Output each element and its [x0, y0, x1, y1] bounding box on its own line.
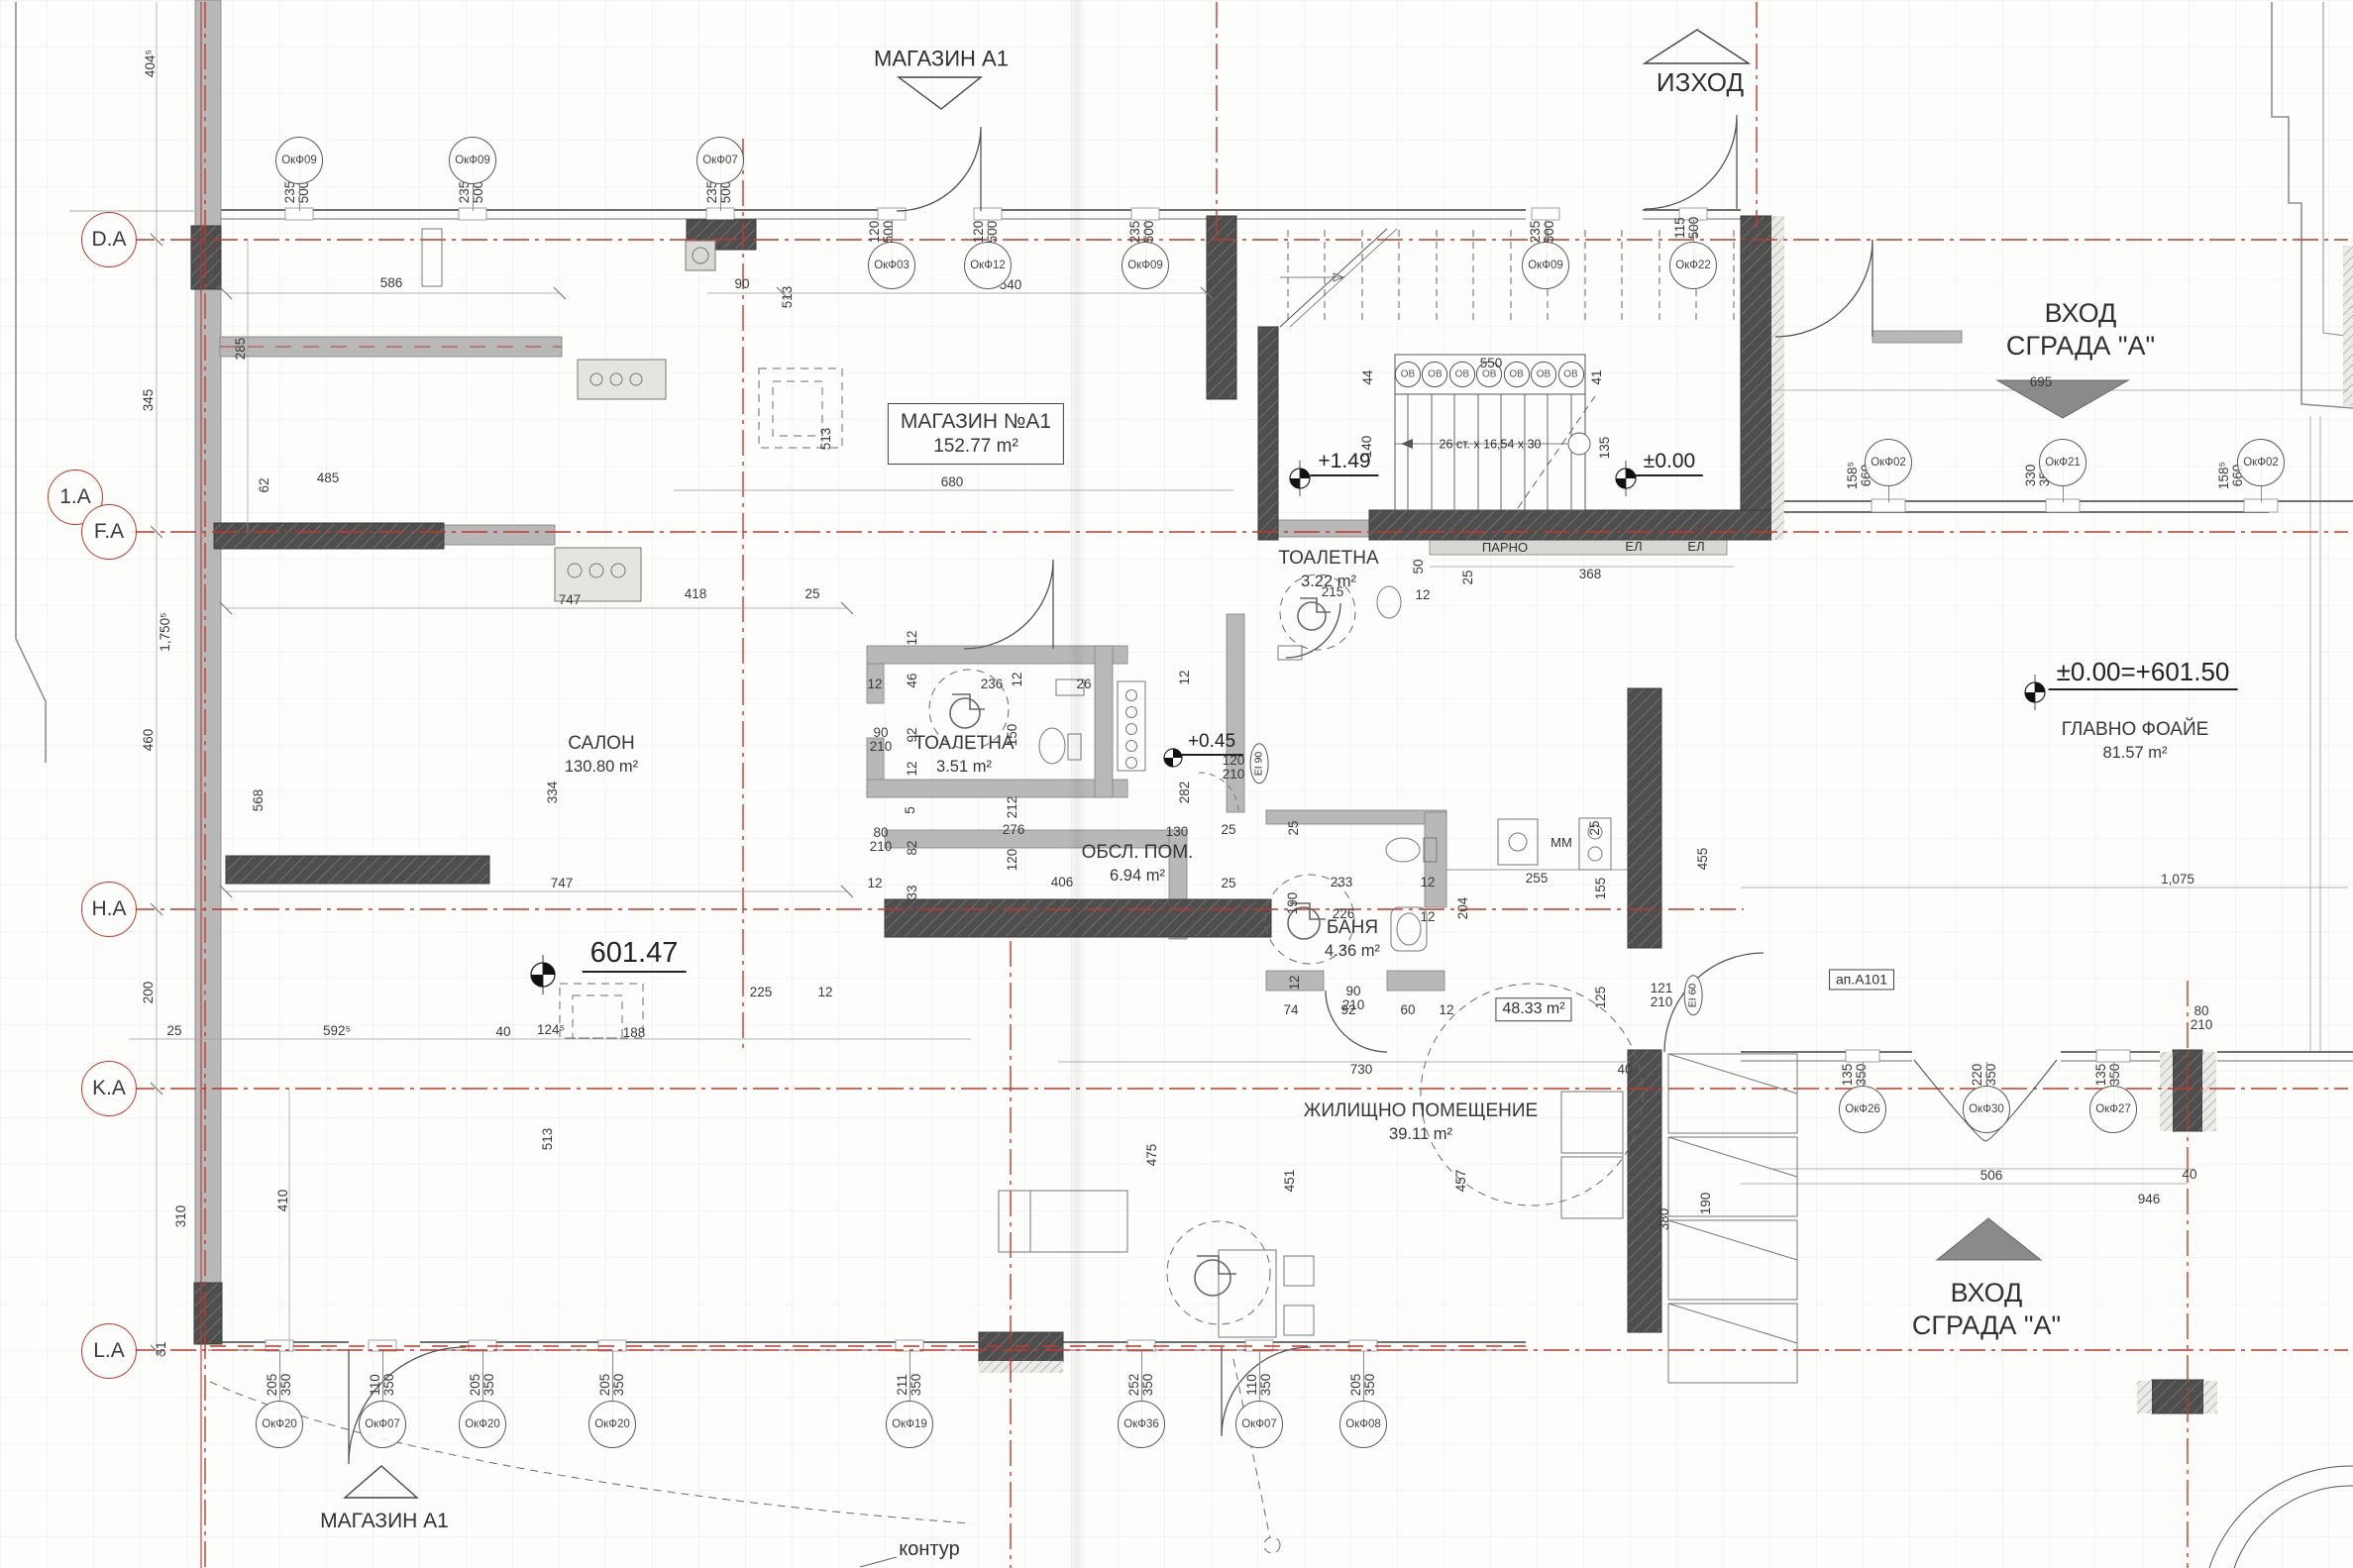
dimension-label: 40	[495, 1025, 510, 1039]
window-marker: ОкФ02	[2237, 439, 2285, 486]
dimension-label: 747	[551, 877, 574, 890]
window-marker: ОкФ19	[886, 1401, 933, 1448]
dimension-label: 680	[941, 475, 964, 489]
room-name: ТОАЛЕТНА	[913, 732, 1014, 757]
dimension-label: 1,750⁵	[159, 612, 172, 651]
dimension-label: 506	[1980, 1169, 2003, 1183]
elevation-label: 601.47	[583, 937, 687, 973]
dimension-label: 12	[1420, 876, 1435, 889]
dimension-label: 82	[906, 840, 919, 855]
dimension-label: 276	[1003, 823, 1025, 837]
dimension-label: 946	[2138, 1193, 2161, 1206]
window-marker: ОкФ26	[1839, 1086, 1886, 1133]
dimension-label: 204	[1456, 897, 1470, 920]
room-area: 152.77 m²	[901, 435, 1051, 460]
dimension-label: 130	[1166, 825, 1189, 839]
window-marker: ОкФ09	[1122, 242, 1169, 289]
window-marker: ОкФ12	[964, 242, 1012, 289]
dimension-label: 135 350	[1841, 1064, 1869, 1087]
insulation	[979, 216, 2353, 1413]
radiator-label: ОВ	[1482, 369, 1496, 380]
dimension-label: 410	[276, 1190, 290, 1212]
dimension-label: 120	[1006, 849, 1019, 872]
dimension-label: 592⁵	[323, 1024, 351, 1038]
radiator-label: ОВ	[1428, 369, 1442, 380]
room-label: МАГАЗИН №А1152.77 m²	[888, 403, 1064, 465]
dimension-label: 225	[750, 986, 773, 999]
dimension-label: 90	[734, 277, 749, 291]
radiator-label: ОВ	[1455, 369, 1469, 380]
window-marker: ОкФ07	[359, 1401, 406, 1448]
structural-walls	[191, 216, 2203, 1413]
dimension-label: 460	[142, 729, 156, 752]
window-marker: ОкФ20	[256, 1401, 303, 1448]
dimension-label: 418	[685, 587, 707, 601]
dimension-label: 455	[1696, 848, 1710, 871]
dimension-label: 74	[1283, 1003, 1298, 1017]
dimension-label: 188	[623, 1026, 646, 1040]
dimension-label: 40	[1617, 1063, 1632, 1077]
dimension-label: 345	[142, 389, 156, 412]
label-electrical-1: ЕЛ	[1625, 539, 1642, 555]
dimension-label: 44	[1361, 369, 1375, 384]
dimension-label: 31	[155, 1341, 168, 1356]
label-entrance-building-a-bottom: ВХОД СГРАДА "А"	[1912, 1277, 2061, 1342]
floor-plan: 404⁵34528558690540235 500235 500235 5001…	[0, 0, 2353, 1568]
window-marker: ОкФ03	[868, 242, 915, 289]
label-shop-entrance-bottom: МАГАЗИН А1	[320, 1509, 449, 1534]
dimension-label: 235 500	[1128, 221, 1156, 244]
room-name: БАНЯ	[1325, 916, 1380, 941]
dimension-label: 12	[1178, 670, 1192, 684]
label-shop-entrance-top: МАГАЗИН А1	[874, 47, 1009, 73]
dimension-label: 1,075	[2161, 873, 2194, 887]
room-label: ОБСЛ. ПОМ.6.94 m²	[1082, 841, 1194, 887]
dimension-label: 155	[1594, 878, 1608, 900]
dimension-label: 12	[1288, 975, 1302, 990]
dimension-label: 380	[1658, 1208, 1671, 1231]
dimension-label: 451	[1283, 1170, 1297, 1193]
dimension-label: 5	[904, 806, 917, 814]
room-name: САЛОН	[565, 732, 638, 757]
label-apartment-number: ап.А101	[1829, 969, 1894, 990]
dimension-label: 40	[2182, 1168, 2196, 1182]
dimension-label: 26	[1076, 678, 1091, 691]
window-marker: ОкФ07	[696, 137, 744, 184]
elevation-label: ±0.00	[1636, 450, 1703, 476]
dimension-label: 404⁵	[144, 50, 158, 77]
dimension-label: 46	[906, 673, 919, 687]
dimension-label: 12	[1011, 672, 1024, 686]
dimension-label: 60	[1400, 1003, 1415, 1017]
room-area: 4.36 m²	[1325, 941, 1380, 962]
dimension-label: 124⁵	[537, 1023, 565, 1037]
dimension-label: 235 500	[283, 181, 311, 204]
window-marker: ОкФ30	[1963, 1086, 2010, 1133]
room-name: МАГАЗИН №А1	[901, 408, 1051, 435]
radiator-label: ОВ	[1563, 369, 1577, 380]
dimension-label: 25	[166, 1024, 181, 1038]
scan-seam	[1068, 0, 1086, 1568]
dimension-label: 12	[817, 986, 832, 999]
dimension-label: 125	[1594, 987, 1608, 1009]
elevation-label: ±0.00=+601.50	[2049, 657, 2238, 690]
dimension-label: 135 350	[2094, 1064, 2122, 1087]
dimension-label: 62	[258, 477, 271, 492]
axis-label: K.A	[81, 1061, 137, 1116]
dimension-label: 747	[559, 593, 582, 607]
room-label: ГЛАВНО ФОАЙЕ81.57 m²	[2062, 718, 2209, 764]
window-marker: ОкФ02	[1865, 439, 1912, 486]
dimension-label: 80 210	[870, 826, 893, 854]
label-exit: ИЗХОД	[1657, 67, 1744, 99]
dimension-label: 25	[1221, 877, 1235, 890]
room-area: 39.11 m²	[1304, 1124, 1538, 1145]
window-marker: ОкФ21	[2039, 439, 2086, 486]
dimension-label: 285	[234, 338, 248, 361]
dimension-label: 334	[546, 782, 560, 804]
room-area: 3.22 m²	[1278, 572, 1378, 592]
radiator-label: ОВ	[1509, 369, 1523, 380]
dimension-label: 120 500	[972, 221, 1000, 244]
radiator-label: ОВ	[1537, 369, 1551, 380]
dimension-label: 485	[317, 471, 340, 485]
label-contour: контур	[899, 1537, 959, 1561]
dimension-label: 200	[142, 982, 156, 1004]
label-electrical-2: ЕЛ	[1687, 539, 1704, 555]
dimension-label: 457	[1454, 1170, 1468, 1193]
dimension-label: 233	[1331, 876, 1353, 889]
dimension-label: 12	[1415, 588, 1430, 602]
dimension-label: 513	[541, 1128, 555, 1151]
label-mm-appliance: ММ	[1551, 835, 1572, 851]
elevation-label: +1.49	[1310, 450, 1378, 476]
dimension-label: 25	[1287, 820, 1301, 835]
label-stair-note: 26 ст. x 16,54 x 30	[1439, 437, 1541, 452]
window-marker: ОкФ27	[2089, 1086, 2137, 1133]
dimension-label: 730	[1350, 1063, 1373, 1077]
dimension-label: 310	[174, 1205, 188, 1228]
dimension-label: 695	[2030, 375, 2053, 389]
dimension-label: 135	[1598, 437, 1612, 460]
window-marker: ОкФ07	[1235, 1401, 1283, 1448]
window-marker: ОкФ22	[1669, 242, 1717, 289]
dimension-label: 115 500	[1673, 217, 1701, 240]
dimension-label: 235 500	[705, 181, 733, 204]
dimension-label: 586	[380, 276, 403, 290]
axis-label: D.A	[81, 212, 137, 267]
dimension-label: 513	[819, 428, 833, 451]
axis-label: H.A	[81, 882, 137, 937]
dimension-label: 33	[906, 885, 919, 899]
dimension-label: 41	[1590, 369, 1604, 384]
dimension-label: 220 350	[1971, 1064, 1998, 1087]
dimension-label: 12	[1439, 1003, 1453, 1017]
label-heating: ПАРНО	[1482, 540, 1528, 556]
dimension-label: 235 500	[458, 181, 485, 204]
dimension-label: 92	[1340, 1003, 1355, 1017]
dimension-label: 568	[252, 789, 266, 812]
dimension-label: 235 500	[1529, 221, 1556, 244]
dimension-label: 120 210	[1223, 754, 1245, 782]
dimension-label: 190	[1699, 1193, 1713, 1215]
room-label: ТОАЛЕТНА3.51 m²	[913, 732, 1014, 778]
dimension-label: 368	[1579, 568, 1602, 581]
dimension-label: 282	[1178, 782, 1192, 804]
label-fire-rating-wall: EI 90	[1250, 744, 1269, 784]
dimension-label: 513	[781, 286, 795, 309]
dimension-label: 12	[906, 630, 919, 645]
axis-label: L.A	[81, 1323, 137, 1379]
window-marker: ОкФ08	[1339, 1401, 1387, 1448]
dimension-label: 12	[867, 877, 882, 890]
dimension-label: 12	[1420, 910, 1435, 924]
window-marker: ОкФ36	[1118, 1401, 1165, 1448]
dimension-label: 255	[1526, 872, 1549, 886]
room-label: ТОАЛЕТНА3.22 m²	[1278, 547, 1378, 592]
dimension-label: 475	[1145, 1144, 1159, 1167]
window-marker: ОкФ20	[588, 1401, 636, 1448]
room-name: ЖИЛИЩНО ПОМЕЩЕНИЕ	[1304, 1099, 1538, 1124]
dimension-label: 80 210	[2191, 1004, 2213, 1032]
dimension-label: 212	[1006, 796, 1019, 819]
dimension-label: 121 210	[1651, 982, 1673, 1009]
room-name: ГЛАВНО ФОАЙЕ	[2062, 718, 2209, 743]
room-area: 6.94 m²	[1082, 866, 1194, 887]
room-name: ТОАЛЕТНА	[1278, 547, 1378, 572]
room-area: 3.51 m²	[913, 757, 1014, 778]
room-label: САЛОН130.80 m²	[565, 732, 638, 778]
dimension-label: 25	[1461, 570, 1475, 584]
room-area: 130.80 m²	[565, 757, 638, 778]
dimension-label: 90 210	[870, 726, 893, 754]
axis-label: F.A	[81, 504, 137, 560]
dimension-label: 406	[1051, 876, 1074, 889]
dimension-label: 190	[1286, 892, 1300, 915]
window-marker: ОкФ09	[275, 137, 323, 184]
window-marker: ОкФ09	[449, 137, 496, 184]
dimension-label: 25	[804, 587, 819, 601]
room-name: ОБСЛ. ПОМ.	[1082, 841, 1194, 866]
label-entrance-building-a-right: ВХОД СГРАДА "А"	[2006, 297, 2155, 363]
dimension-label: 50	[1412, 559, 1426, 574]
room-label: БАНЯ4.36 m²	[1325, 916, 1380, 962]
room-label: ЖИЛИЩНО ПОМЕЩЕНИЕ39.11 m²	[1304, 1099, 1538, 1145]
label-fire-rating-door: EI 60	[1684, 976, 1703, 1016]
label-apartment-area: 48.33 m²	[1495, 997, 1571, 1021]
elevation-label: +0.45	[1180, 731, 1243, 756]
window-marker: ОкФ09	[1522, 242, 1569, 289]
window-marker: ОкФ20	[459, 1401, 506, 1448]
room-area: 81.57 m²	[2062, 743, 2209, 764]
dimension-label: 12	[867, 678, 882, 691]
dimension-label: 25	[1221, 823, 1235, 837]
dimension-label: 25	[1588, 820, 1602, 835]
radiator-label: ОВ	[1401, 369, 1415, 380]
dimension-label: 236	[981, 678, 1004, 691]
